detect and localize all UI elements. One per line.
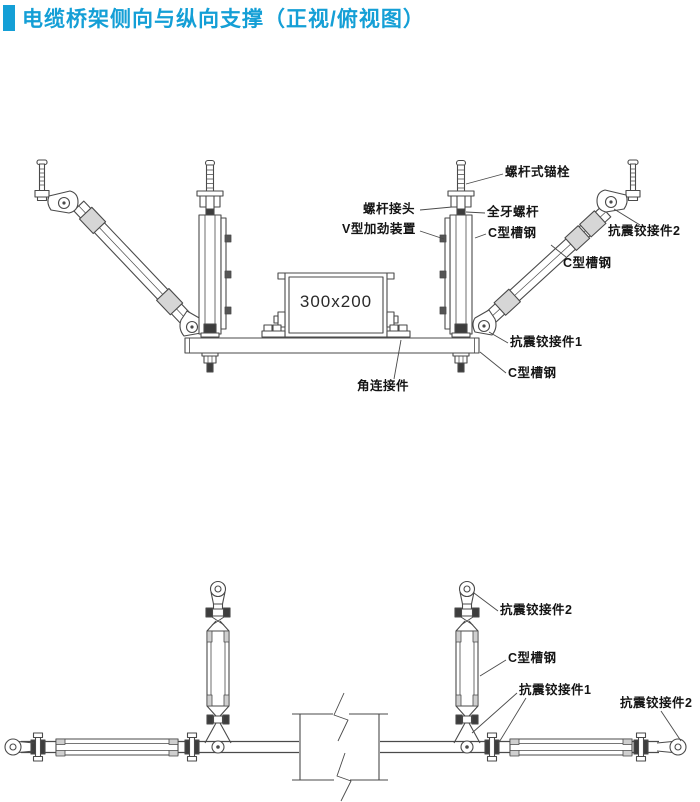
vertical-hanger-left — [197, 161, 231, 338]
label-top-seismic-hinge-2: 抗震铰接件2 — [500, 604, 572, 618]
label-rod-coupler: 螺杆接头 — [363, 203, 415, 217]
hinge-ear-top-right — [597, 190, 627, 212]
tray-size-label: 300x200 — [285, 292, 387, 312]
label-seismic-hinge-1: 抗震铰接件1 — [510, 336, 582, 350]
plan-brace-right — [454, 582, 480, 754]
anchor-bolt-left-icon — [35, 160, 49, 201]
label-full-thread-rod: 全牙螺杆 — [487, 206, 539, 220]
label-angle-connector: 角连接件 — [357, 380, 409, 394]
plan-brace-left — [205, 582, 231, 754]
label-c-channel-diagonal: C型槽钢 — [563, 257, 612, 271]
label-c-channel-vertical: C型槽钢 — [488, 227, 537, 241]
beam-bolt-right — [453, 353, 469, 372]
angle-connector-left — [262, 325, 285, 337]
diagram-canvas — [0, 0, 700, 802]
rail-hinge-left-inner — [185, 733, 199, 761]
angle-connector-right — [387, 325, 410, 337]
anchor-bolt-right-icon — [626, 160, 640, 201]
label-top-seismic-hinge-2-right: 抗震铰接件2 — [620, 697, 692, 711]
label-c-channel-beam: C型槽钢 — [508, 367, 557, 381]
rail-hinge-right-outer — [634, 733, 648, 761]
plan-channel-left — [56, 739, 178, 756]
label-top-seismic-hinge-1: 抗震铰接件1 — [519, 684, 591, 698]
label-top-c-channel: C型槽钢 — [508, 652, 557, 666]
rail-eye-right — [657, 739, 686, 755]
beam-c-channel — [185, 338, 479, 353]
label-seismic-hinge-2: 抗震铰接件2 — [608, 225, 680, 239]
rail-hinge-right-inner — [485, 733, 499, 761]
tray-break-symbol — [292, 693, 388, 801]
label-v-stiffener: V型加劲装置 — [342, 223, 416, 237]
beam-bolt-left — [202, 353, 218, 372]
hinge-ear-top-left — [48, 191, 78, 213]
plan-channel-right — [510, 739, 632, 756]
document-page: 电缆桥架侧向与纵向支撑（正视/俯视图） — [0, 0, 700, 802]
rail-hinge-left-outer — [31, 733, 45, 761]
vertical-hanger-right — [440, 161, 474, 338]
label-screw-anchor-bolt: 螺杆式锚栓 — [505, 166, 570, 180]
diagonal-brace-left — [73, 200, 197, 329]
